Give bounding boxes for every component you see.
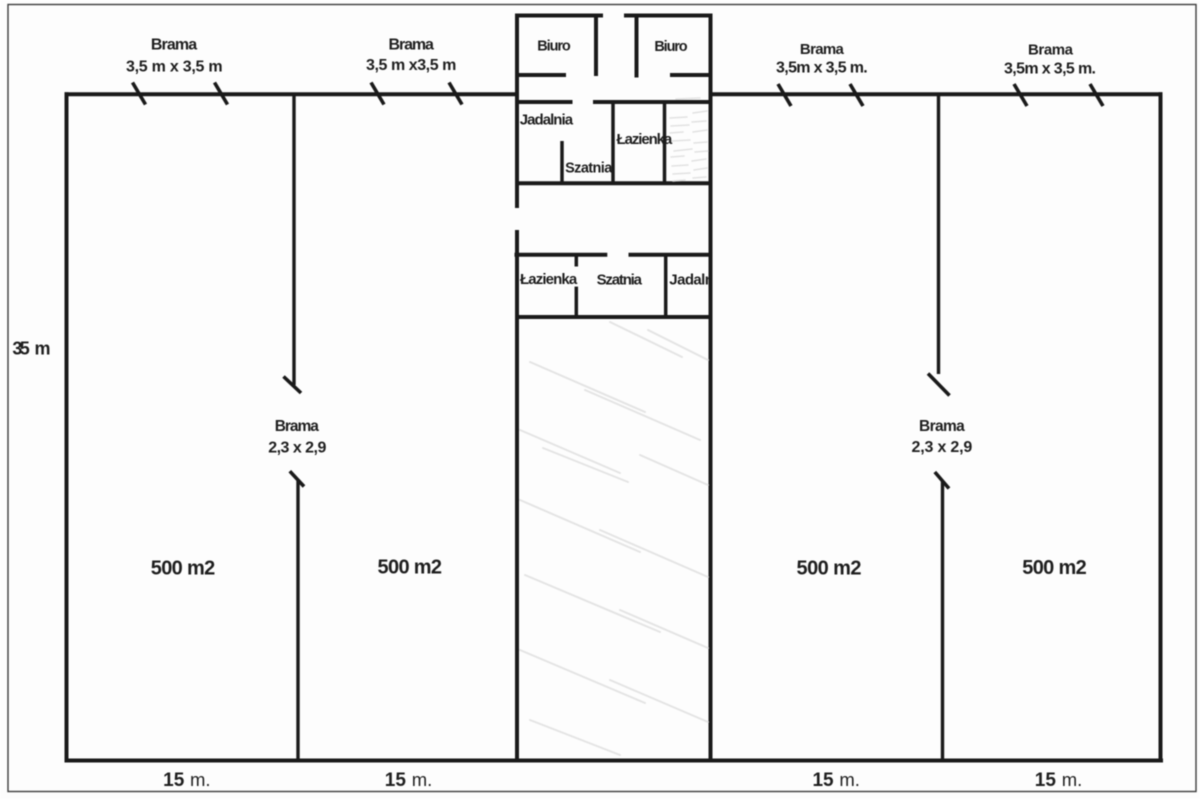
- svg-text:3,5 m x 3,5 m: 3,5 m x 3,5 m: [126, 58, 223, 75]
- svg-text:m.: m.: [412, 769, 433, 790]
- svg-text:Brama: Brama: [919, 418, 965, 435]
- svg-text:Brama: Brama: [275, 418, 320, 435]
- svg-text:Szatnia: Szatnia: [565, 161, 613, 177]
- svg-text:m.: m.: [190, 769, 211, 790]
- svg-text:500 m2: 500 m2: [797, 557, 862, 579]
- svg-text:Biuro: Biuro: [654, 39, 687, 55]
- svg-text:Szatnia: Szatnia: [597, 272, 643, 289]
- svg-text:2,3 x 2,9: 2,3 x 2,9: [268, 439, 326, 456]
- svg-text:15: 15: [812, 770, 834, 791]
- svg-text:m: m: [35, 338, 51, 358]
- svg-text:m.: m.: [1062, 769, 1083, 790]
- svg-text:Brama: Brama: [389, 36, 434, 53]
- svg-text:Brama: Brama: [800, 41, 845, 58]
- svg-text:Brama: Brama: [1028, 42, 1074, 59]
- svg-text:3,5m x 3,5 m.: 3,5m x 3,5 m.: [1004, 61, 1096, 78]
- svg-text:15: 15: [385, 770, 407, 791]
- svg-text:500 m2: 500 m2: [1022, 557, 1086, 579]
- svg-text:2,3 x 2,9: 2,3 x 2,9: [912, 439, 973, 456]
- svg-text:Jadalnia: Jadalnia: [520, 112, 574, 129]
- svg-text:500 m2: 500 m2: [378, 556, 443, 578]
- svg-text:m.: m.: [839, 769, 860, 790]
- svg-text:500 m2: 500 m2: [151, 558, 216, 580]
- svg-text:3,5 m x3,5 m: 3,5 m x3,5 m: [366, 57, 456, 74]
- svg-text:35: 35: [12, 338, 29, 358]
- svg-text:Biuro: Biuro: [537, 39, 571, 55]
- svg-text:3,5m x 3,5 m.: 3,5m x 3,5 m.: [776, 59, 868, 76]
- svg-text:15: 15: [1035, 770, 1057, 791]
- svg-text:Łazienka: Łazienka: [520, 271, 578, 288]
- svg-text:Brama: Brama: [151, 37, 197, 54]
- svg-text:15: 15: [163, 770, 185, 791]
- svg-text:Łazienka: Łazienka: [617, 131, 673, 148]
